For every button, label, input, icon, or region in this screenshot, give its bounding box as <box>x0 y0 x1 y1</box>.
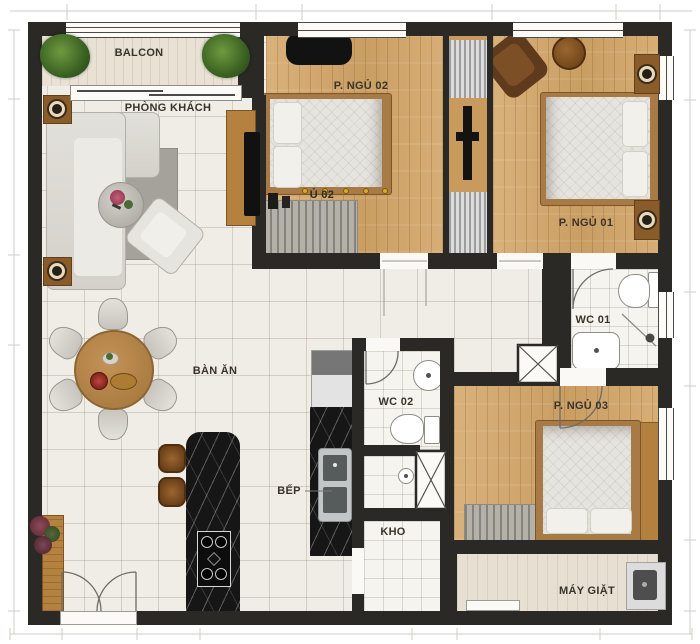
wc2-door-arc <box>366 351 398 384</box>
room-label-bedroom2-partial: Ủ 02 <box>310 189 334 201</box>
room-label-laundry: MÁY GIẶT <box>559 585 615 597</box>
apartment-floor-plan: BALCON PHÒNG KHÁCH P. NGỦ 02 Ủ 02 P. NGỦ… <box>0 0 700 644</box>
room-label-storage: KHO <box>380 526 405 538</box>
room-label-wc1: WC 01 <box>575 314 610 326</box>
entry-door-arc <box>97 572 136 611</box>
room-label-bedroom2: P. NGỦ 02 <box>334 80 388 92</box>
room-label-bedroom1: P. NGỦ 01 <box>559 217 613 229</box>
room-label-bedroom3: P. NGỦ 03 <box>554 400 608 412</box>
room-label-dining: BÀN ĂN <box>193 365 238 377</box>
room-label-living: PHÒNG KHÁCH <box>125 102 211 114</box>
wc1-door-arc <box>573 269 613 309</box>
room-label-kitchen: BẾP <box>277 485 301 497</box>
entry-door-arc <box>62 572 101 611</box>
room-label-wc2: WC 02 <box>378 396 413 408</box>
shower-head-icon <box>646 334 655 343</box>
room-label-balcony: BALCON <box>115 47 164 59</box>
